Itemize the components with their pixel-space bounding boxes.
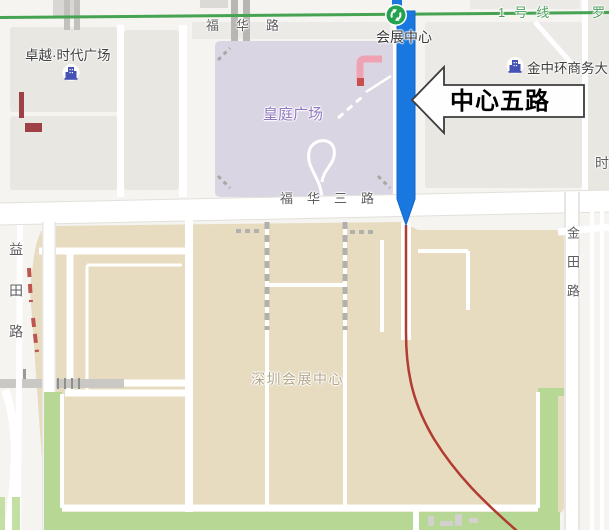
poi-label-zhuoyue: 卓越·时代广场 (25, 48, 111, 64)
road-label-jintian: 金田路 (564, 226, 579, 313)
metro-line-label: 1号线 (498, 6, 558, 21)
poi-label-huangting: 皇庭广场 (263, 106, 323, 123)
convention-area (29, 220, 564, 514)
building-icon (62, 63, 80, 87)
road-label-partial-right: 时 (595, 155, 609, 171)
metro-station-icon[interactable] (384, 3, 408, 32)
poi-label-jinzhonghuan: 金中环商务大 (527, 61, 608, 77)
road-label-fuhua: 福华路 (206, 19, 296, 34)
poi-label-convention-center: 深圳会展中心 (251, 371, 344, 387)
building-icon (506, 56, 524, 80)
road-label-fuhua-san: 福华三路 (280, 192, 388, 207)
map-canvas[interactable]: 福华路 1号线 罗 会展中心 卓越·时代广场 金中环商务大 皇庭广场 福华三路 … (0, 0, 609, 530)
callout-label: 中心五路 (446, 87, 584, 117)
metro-line-label-partial: 罗 (592, 6, 605, 21)
road-label-yitian: 益田路 (8, 242, 24, 365)
